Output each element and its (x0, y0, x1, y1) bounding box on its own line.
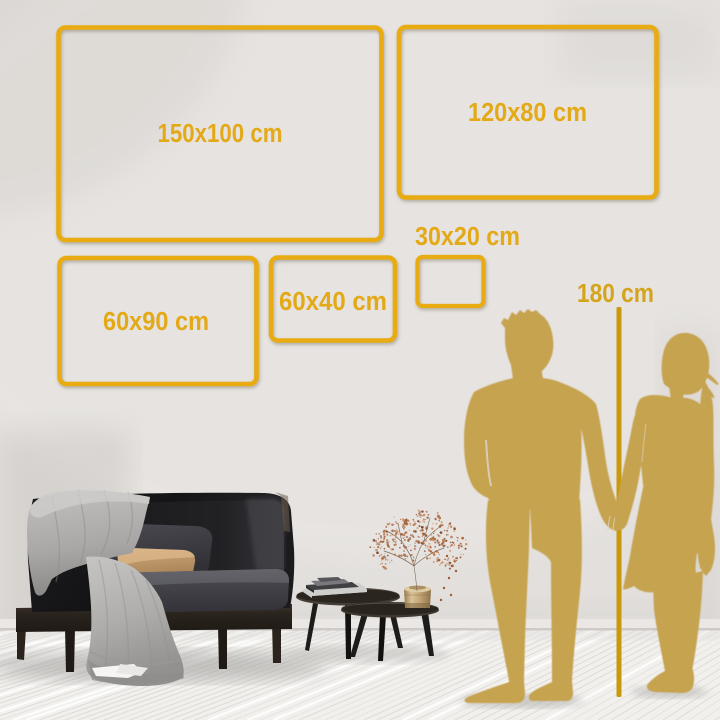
svg-text:60x40 cm: 60x40 cm (279, 288, 387, 316)
svg-text:120x80 cm: 120x80 cm (468, 99, 587, 127)
svg-text:30x20 cm: 30x20 cm (415, 223, 520, 251)
svg-text:180 cm: 180 cm (577, 280, 654, 308)
svg-text:150x100 cm: 150x100 cm (158, 120, 283, 148)
svg-text:60x90 cm: 60x90 cm (103, 308, 209, 336)
